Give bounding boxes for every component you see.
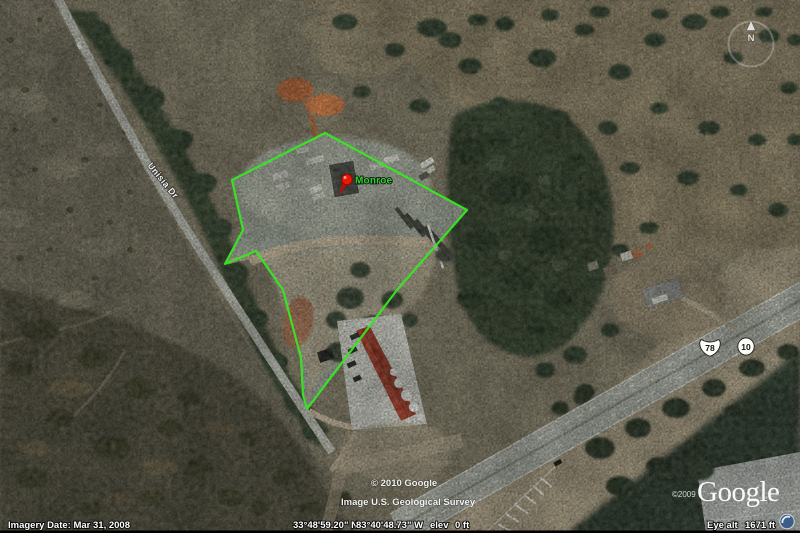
compass-navigator[interactable]: N (729, 21, 774, 67)
longitude-readout: 83°40'48.73" W (356, 520, 423, 531)
pushpin-glint (344, 176, 347, 179)
placemark-label[interactable]: Monroe (355, 176, 393, 187)
elev-value: 0 ft (455, 520, 470, 531)
imagery-date: Imagery Date: Mar 31, 2008 (8, 520, 130, 531)
ga10-number: 10 (741, 342, 751, 352)
aerial-imagery (0, 0, 800, 533)
map-copyright: © 2010 Google (371, 478, 437, 489)
latitude-readout: 33°48'59.20" N (293, 520, 358, 531)
pushpin-icon[interactable] (342, 174, 353, 185)
us78-number: 78 (705, 343, 715, 353)
google-logo: Google (697, 476, 779, 508)
globe-icon (780, 514, 794, 528)
google-earth-viewport[interactable]: Unisia Dr 78 10 Monroe N © 2010 Google I… (0, 0, 800, 533)
noise-light (0, 0, 800, 533)
elev-label: elev (430, 520, 449, 531)
eye-alt-value: 1671 ft (745, 520, 776, 531)
ga10-shield: 10 (738, 338, 754, 355)
logo-copyright: ©2009 (672, 490, 696, 499)
imagery-credit: Image U.S. Geological Survey (341, 497, 476, 508)
north-label: N (748, 33, 755, 44)
eye-alt-label: Eye alt (707, 520, 738, 531)
